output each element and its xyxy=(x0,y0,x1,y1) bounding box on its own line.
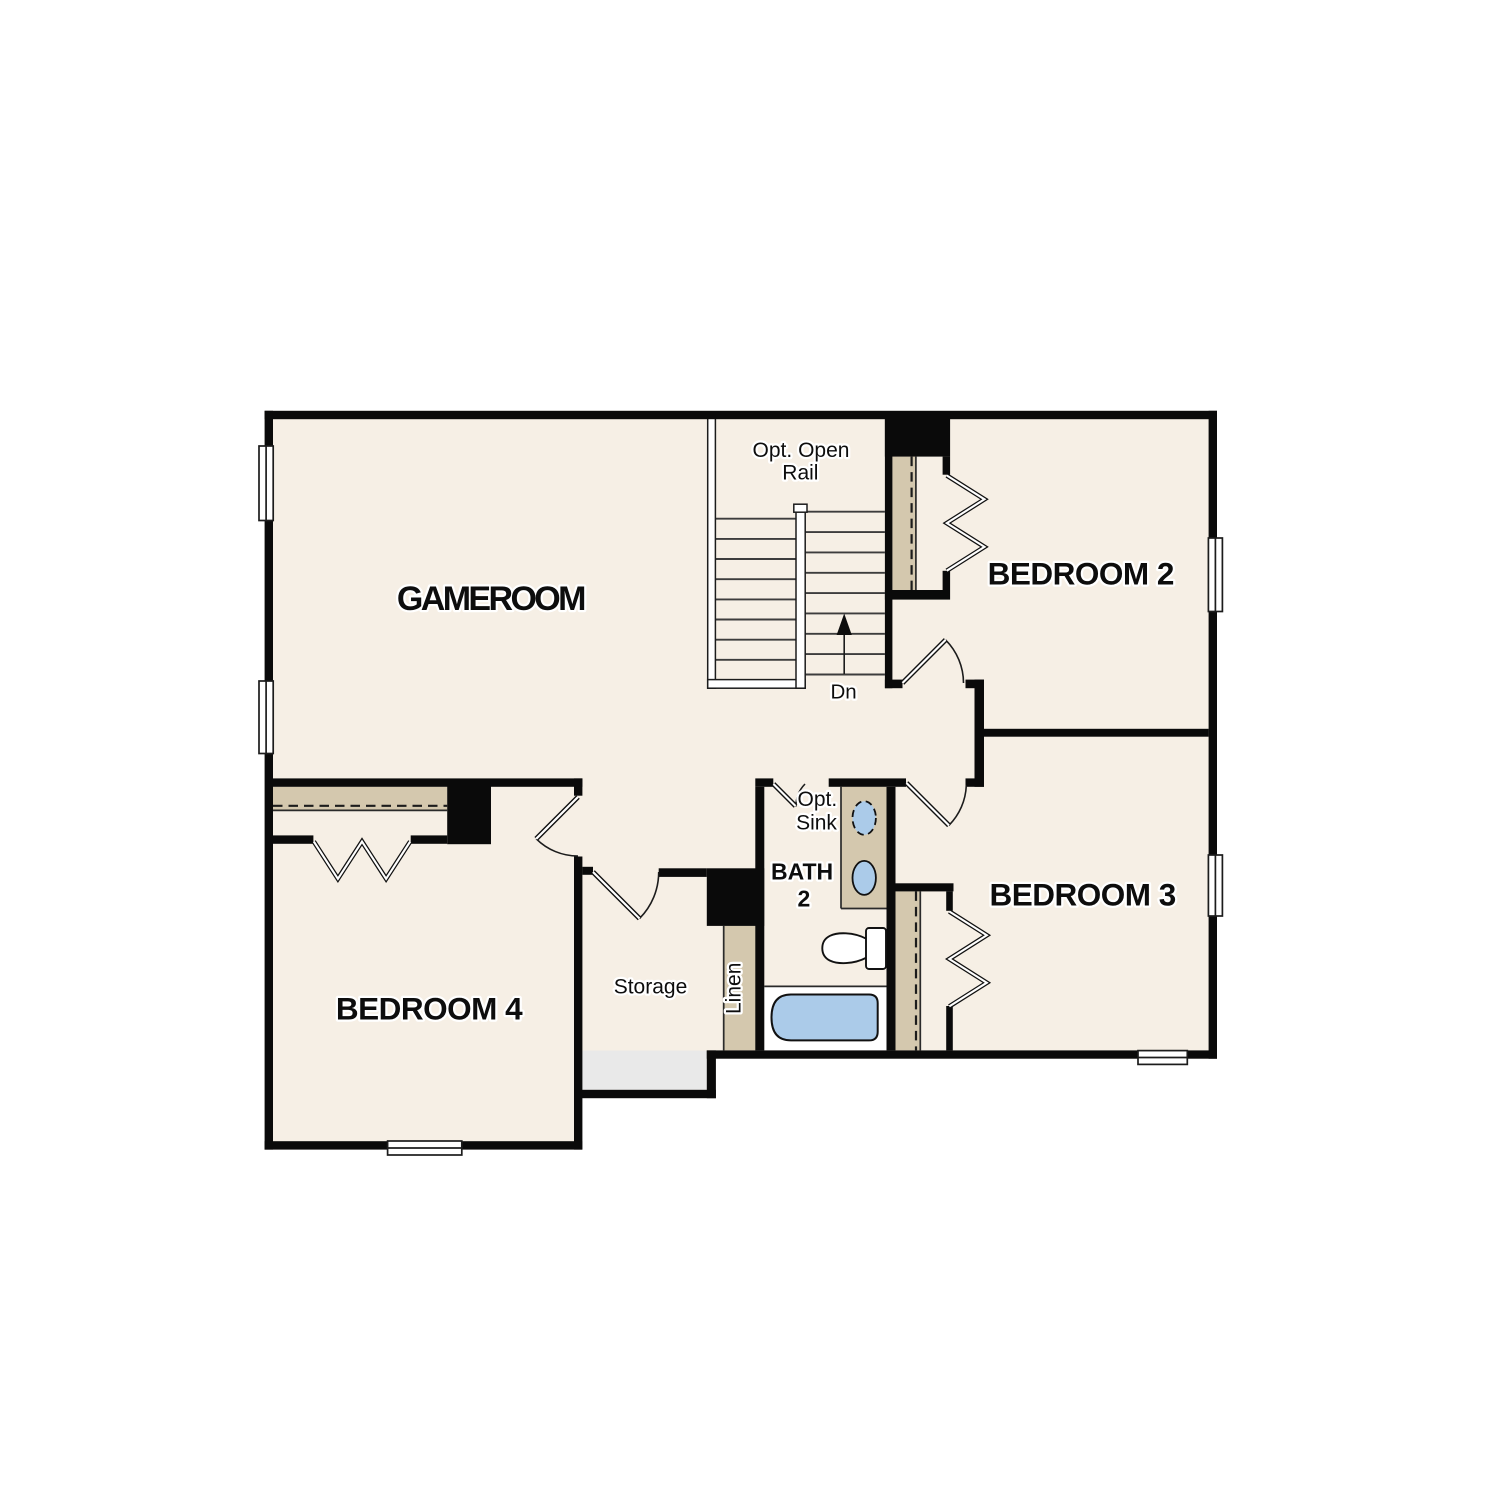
svg-text:BEDROOM 3: BEDROOM 3 xyxy=(990,877,1176,913)
svg-text:BEDROOM 4: BEDROOM 4 xyxy=(336,990,523,1026)
svg-text:Dn: Dn xyxy=(830,681,856,704)
svg-text:GAMEROOM: GAMEROOM xyxy=(397,580,585,618)
svg-text:BATH: BATH xyxy=(771,859,833,885)
svg-text:Linen: Linen xyxy=(723,963,746,1014)
svg-text:Storage: Storage xyxy=(614,976,688,999)
svg-text:Rail: Rail xyxy=(782,462,818,485)
svg-text:Opt.: Opt. xyxy=(798,788,838,811)
svg-text:Opt. Open: Opt. Open xyxy=(753,439,850,462)
svg-text:Sink: Sink xyxy=(796,812,837,835)
svg-text:2: 2 xyxy=(798,886,811,912)
svg-text:BEDROOM 2: BEDROOM 2 xyxy=(988,555,1174,591)
